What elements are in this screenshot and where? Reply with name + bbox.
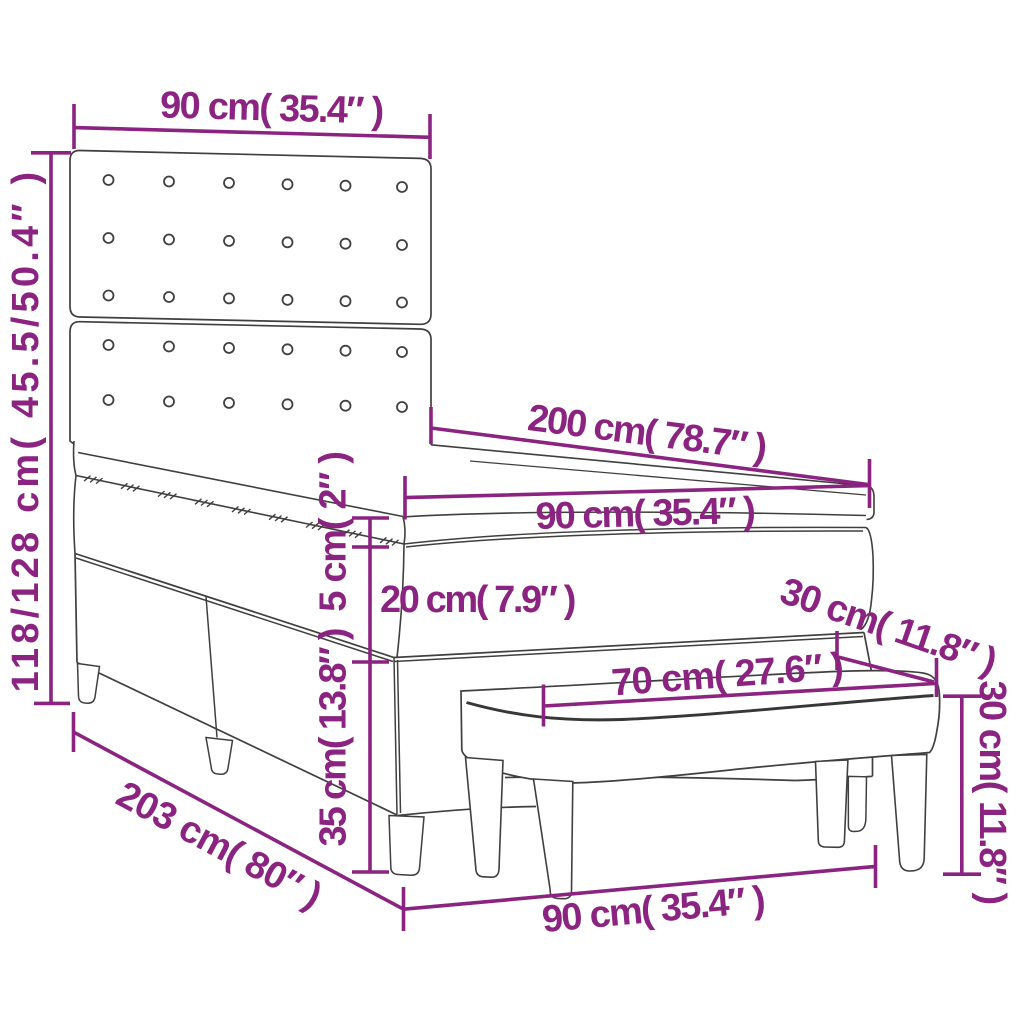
svg-text:90 cm( 35.4″ ): 90 cm( 35.4″ ) <box>535 490 755 538</box>
svg-text:90 cm( 35.4″ ): 90 cm( 35.4″ ) <box>160 85 384 133</box>
svg-text:20 cm( 7.9″ ): 20 cm( 7.9″ ) <box>380 579 575 621</box>
svg-text:30 cm( 11.8″ ): 30 cm( 11.8″ ) <box>971 680 1013 903</box>
svg-text:118/128 cm( 45.5/50.4″ ): 118/128 cm( 45.5/50.4″ ) <box>5 168 47 693</box>
svg-text:5 cm( 2″ ): 5 cm( 2″ ) <box>313 452 355 611</box>
svg-text:35 cm( 13.8″ ): 35 cm( 13.8″ ) <box>313 629 355 846</box>
